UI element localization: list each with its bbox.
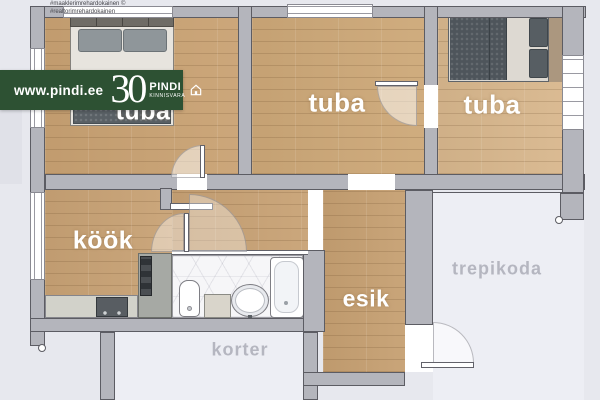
window-kitchen-left <box>30 192 45 280</box>
bed2-headboard <box>548 15 562 82</box>
bed2-pillow-top <box>529 18 548 47</box>
bed2-blanket-fold <box>489 17 490 80</box>
bathtub-basin <box>274 261 299 313</box>
watermark-line2: #realtorimrehardokainen <box>50 8 125 16</box>
brand-subname: KINNISVARA <box>149 94 185 99</box>
floor-plan: tuba tuba tuba köök esik trepikoda korte… <box>0 0 600 400</box>
label-kitchen: köök <box>73 227 133 256</box>
bed2-pillow-bottom <box>529 49 548 78</box>
hinge-dot-stairwell <box>555 216 563 224</box>
washing-machine <box>204 294 231 318</box>
door-leaf-bedroom3 <box>375 81 418 86</box>
brand-name: PINDI <box>149 82 185 93</box>
opening-bedroom2-hallway <box>348 174 395 190</box>
label-stairwell: trepikoda <box>452 259 542 280</box>
label-neighbor: korter <box>211 340 268 361</box>
watermark-line1: #maaklerimrehardokainen © <box>50 0 125 8</box>
bed2-blanket <box>450 17 507 80</box>
hallway-floor <box>323 190 405 372</box>
wall-bottom <box>30 318 320 332</box>
wall-hallway-bottom <box>303 372 405 386</box>
wall-bathroom-right <box>303 250 325 332</box>
wall-hallway-left-lower <box>303 332 318 400</box>
wall-middle <box>45 174 585 190</box>
corridor-hallway-threshold <box>308 190 323 252</box>
door-gap-bedroom3 <box>424 85 438 128</box>
banner-url: www.pindi.ee <box>14 83 103 98</box>
oven-stack <box>140 256 152 296</box>
wall-partition-1 <box>238 6 252 186</box>
stove <box>96 297 128 317</box>
window-bedroom2-top <box>287 4 373 18</box>
toilet-button <box>187 306 192 311</box>
wall-right-lower <box>560 193 584 220</box>
brand-banner: www.pindi.ee 30 PINDI KINNISVARA <box>0 70 183 110</box>
anniversary-30: 30 <box>110 70 144 108</box>
wall-neighbor-left <box>100 332 115 400</box>
label-hallway: esik <box>343 286 390 313</box>
bed-pillow-right <box>123 29 167 52</box>
wall-hallway-right <box>405 190 433 325</box>
toilet <box>179 280 200 317</box>
bed-pillow-left <box>78 29 122 52</box>
window-bedroom3-right <box>562 55 584 130</box>
door-leaf-bedroom1 <box>200 145 205 178</box>
sink <box>231 284 269 317</box>
watermark-text: #maaklerimrehardokainen © #realtorimreha… <box>50 0 125 16</box>
brand-name-block: PINDI KINNISVARA <box>149 82 185 99</box>
label-bedroom3: tuba <box>464 90 521 121</box>
house-icon <box>189 83 203 97</box>
door-leaf-corridor <box>184 213 189 252</box>
entrance-door-leaf <box>421 362 474 368</box>
hinge-dot-bottom-left <box>38 344 46 352</box>
bathtub-drain <box>284 301 288 305</box>
neighbor-apartment-area <box>115 332 303 400</box>
label-bedroom2: tuba <box>309 88 366 119</box>
